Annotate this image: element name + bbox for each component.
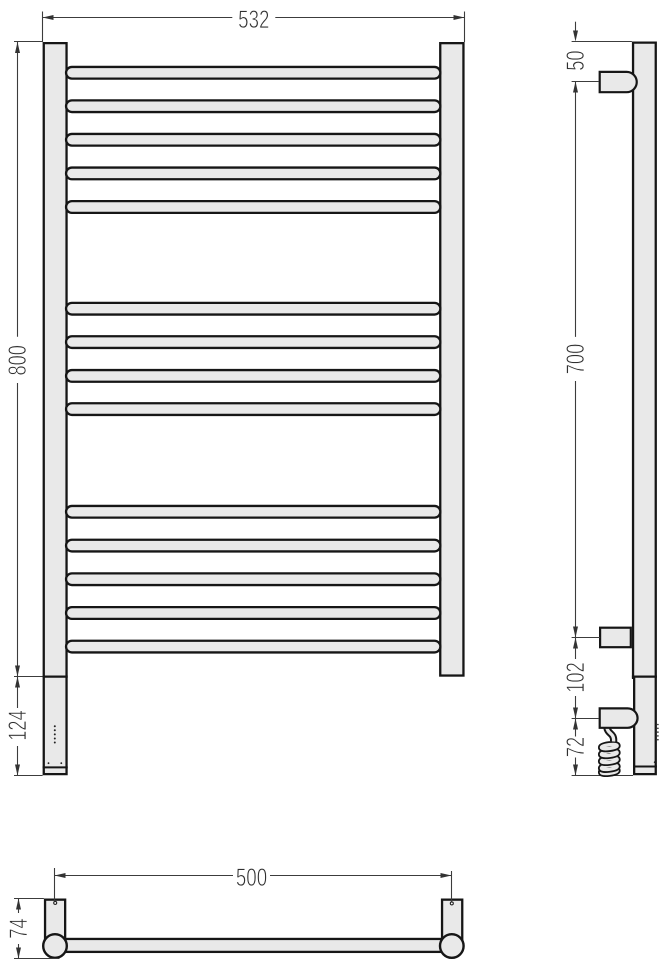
svg-text:74: 74 (4, 918, 33, 938)
svg-text:124: 124 (3, 710, 32, 740)
svg-text:700: 700 (561, 344, 590, 374)
svg-text:500: 500 (236, 863, 267, 891)
svg-text:800: 800 (3, 345, 32, 375)
svg-text:532: 532 (238, 5, 269, 33)
svg-text:50: 50 (561, 50, 590, 70)
svg-text:72: 72 (561, 737, 590, 757)
svg-text:102: 102 (561, 662, 590, 692)
